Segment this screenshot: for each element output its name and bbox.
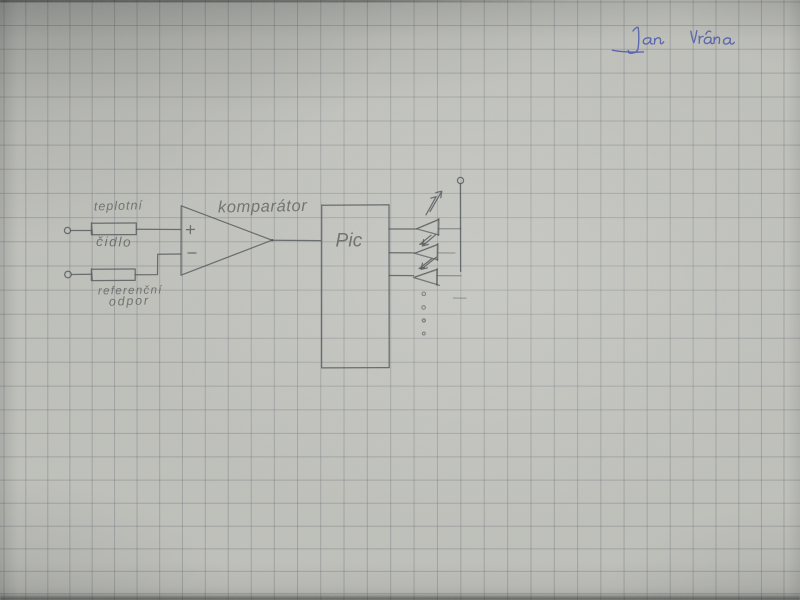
svg-text:teplotní: teplotní (94, 198, 144, 213)
svg-text:čidlo: čidlo (96, 234, 133, 250)
svg-text:odpor: odpor (109, 293, 150, 308)
svg-text:Pic: Pic (336, 231, 363, 252)
svg-text:komparátor: komparátor (218, 197, 309, 217)
